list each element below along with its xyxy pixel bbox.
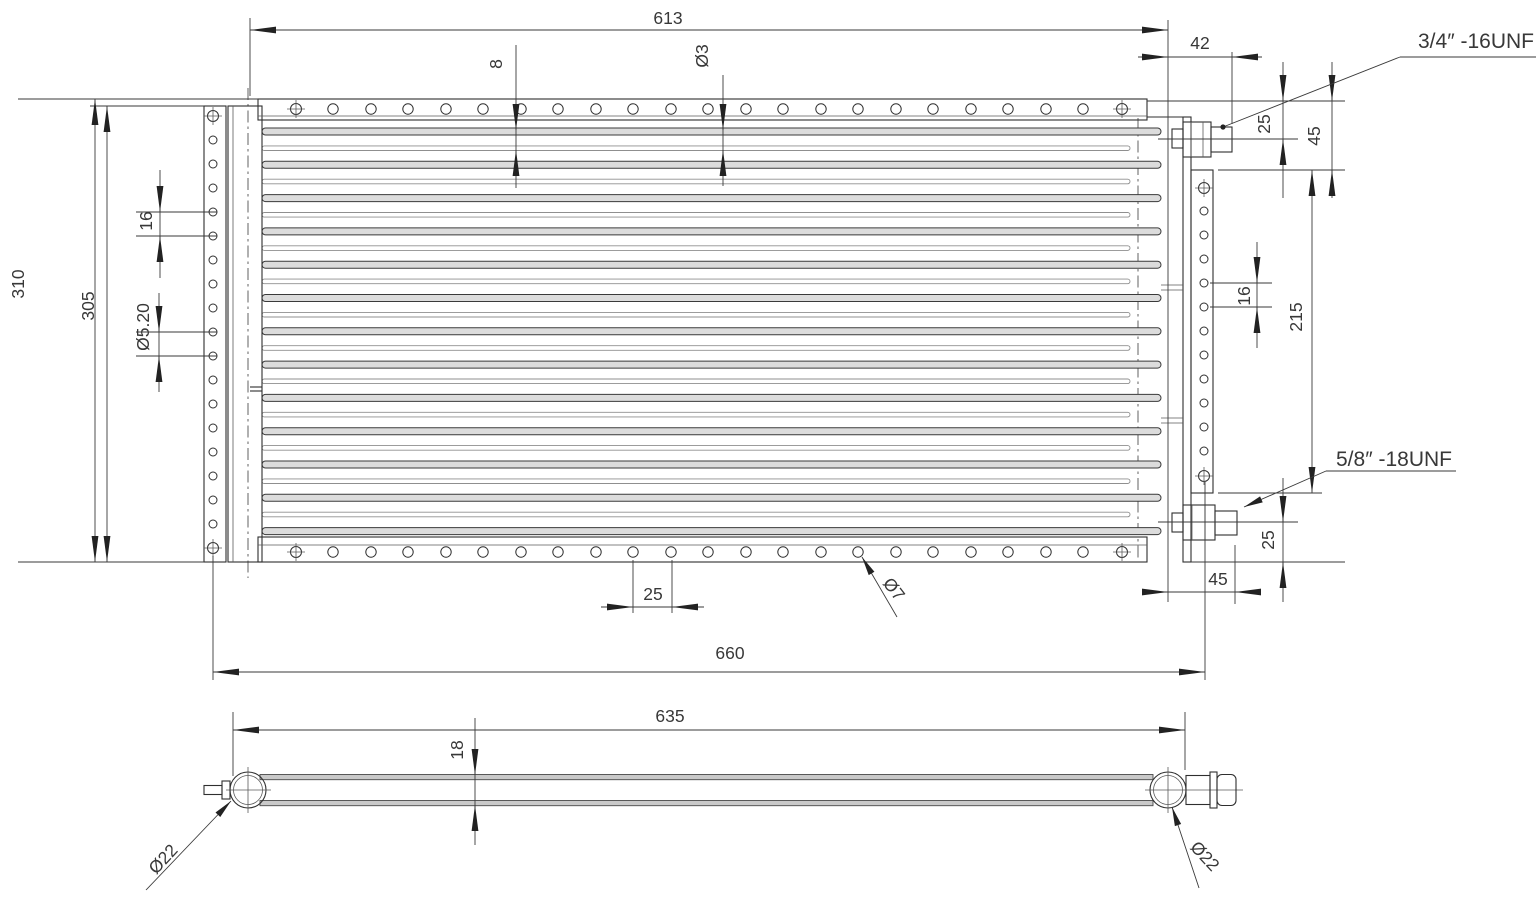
left-header-tank	[228, 106, 262, 562]
dim-635-label: 635	[655, 706, 684, 726]
dim-16-right-label: 16	[1234, 286, 1254, 305]
dim-25-top-label: 25	[1254, 114, 1274, 133]
dim-25-port-bottom-label: 25	[1258, 530, 1278, 549]
top-plate	[258, 99, 1147, 120]
dim-d22-left-label: Ø22	[144, 840, 181, 878]
side-view	[204, 767, 1243, 813]
dim-25-holes-label: 25	[643, 584, 662, 604]
plan-view	[204, 88, 1237, 578]
port-bottom-label: 5/8″ -18UNF	[1336, 448, 1452, 471]
dimension-labels: 613 42 3/4″ -16UNF 25 45 310 305 16 Ø5.2…	[8, 8, 1534, 878]
dim-42-label: 42	[1190, 33, 1209, 53]
dim-18-label: 18	[447, 740, 467, 759]
dim-hole-diameter-label: Ø5.20	[133, 303, 153, 351]
core-tubes-and-fins	[262, 128, 1161, 535]
dim-d22-right-label: Ø22	[1186, 837, 1223, 875]
right-mounting-bracket	[1191, 170, 1213, 493]
dim-16-left-label: 16	[136, 211, 156, 230]
condenser-technical-drawing: 613 42 3/4″ -16UNF 25 45 310 305 16 Ø5.2…	[0, 0, 1539, 901]
dim-45-bottom-label: 45	[1208, 569, 1227, 589]
bottom-port-fitting	[1172, 505, 1237, 540]
dim-8-label: 8	[486, 59, 506, 69]
dim-d3-label: Ø3	[692, 44, 712, 67]
dim-305-label: 305	[78, 291, 98, 320]
left-mounting-bracket	[204, 106, 226, 562]
dim-613-label: 613	[653, 8, 682, 28]
dim-45-top-label: 45	[1304, 126, 1324, 145]
bottom-plate	[258, 537, 1147, 562]
dim-660-label: 660	[715, 643, 744, 663]
technical-drawing-page: 613 42 3/4″ -16UNF 25 45 310 305 16 Ø5.2…	[0, 0, 1539, 901]
dim-215-label: 215	[1286, 302, 1306, 331]
dim-d7-label: Ø7	[879, 574, 909, 605]
dim-310-label: 310	[8, 269, 28, 298]
port-top-label: 3/4″ -16UNF	[1418, 30, 1534, 53]
